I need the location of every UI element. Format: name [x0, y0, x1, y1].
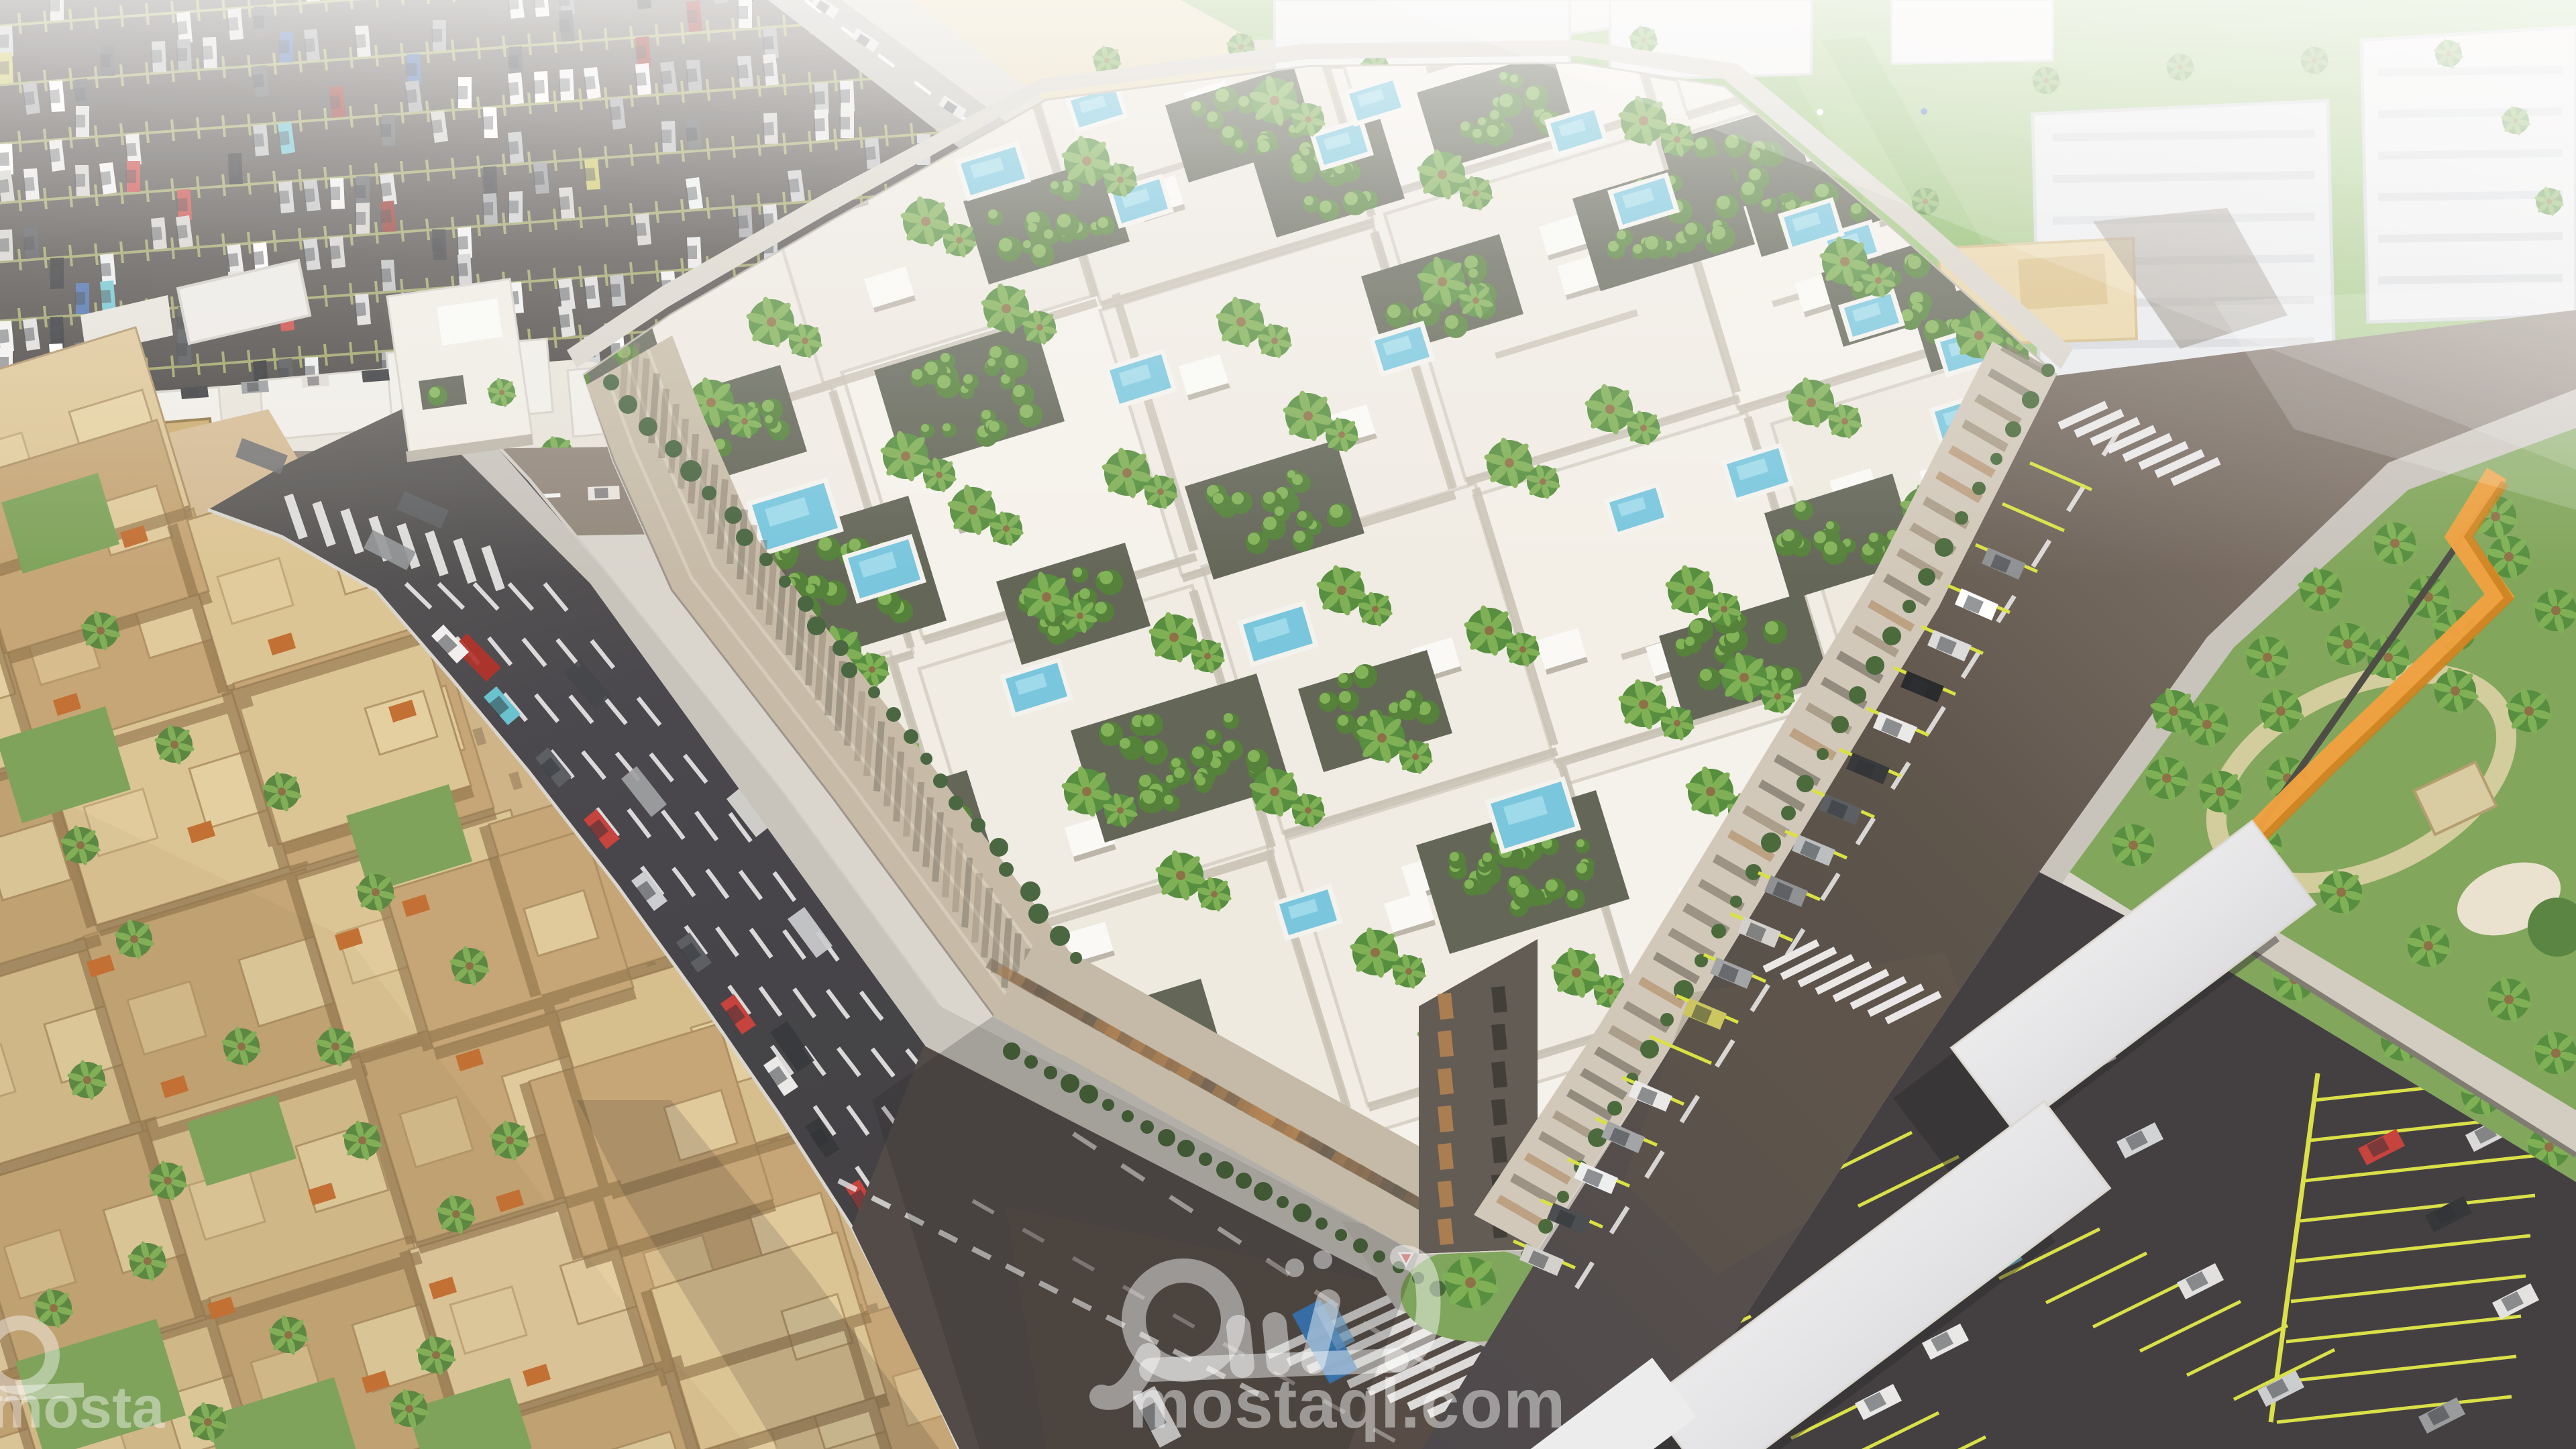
svg-text:mosta: mosta [0, 1374, 165, 1440]
svg-text:mostaql.com: mostaql.com [1128, 1365, 1566, 1443]
